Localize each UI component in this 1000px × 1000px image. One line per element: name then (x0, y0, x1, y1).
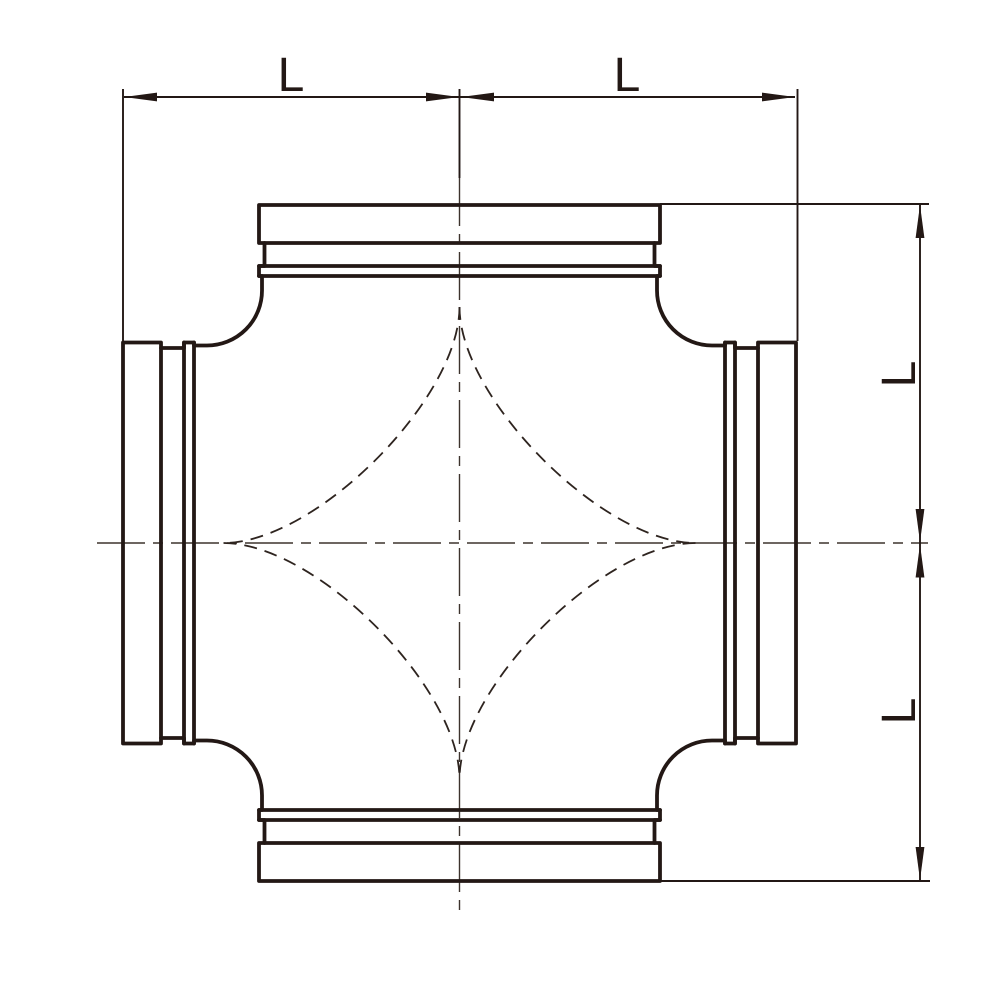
cross-fitting-drawing: L L L L (0, 0, 1000, 1000)
bore-curve-upper-left (224, 307, 460, 543)
arrow-center-left (461, 93, 494, 102)
dim-label-right-lower: L (873, 698, 926, 725)
arrow-right-out (762, 93, 795, 102)
arrow-mid-up (916, 545, 925, 578)
bore-curve-lower-right (460, 543, 696, 779)
arrow-bottom-down (916, 847, 925, 880)
bore-curve-upper-right (460, 307, 696, 543)
drawing-canvas: L L L L (0, 0, 1000, 1000)
arrow-center-right (426, 93, 459, 102)
bore-curve-lower-left (224, 543, 460, 779)
arrow-top-up (916, 205, 925, 238)
dimension-top: L L (123, 49, 798, 341)
dim-label-top-right: L (614, 49, 641, 102)
dim-label-right-upper: L (873, 361, 926, 388)
arrow-mid-down (916, 509, 925, 542)
arrow-left-out (124, 93, 157, 102)
centerlines (97, 178, 928, 917)
dim-label-top-left: L (278, 49, 305, 102)
